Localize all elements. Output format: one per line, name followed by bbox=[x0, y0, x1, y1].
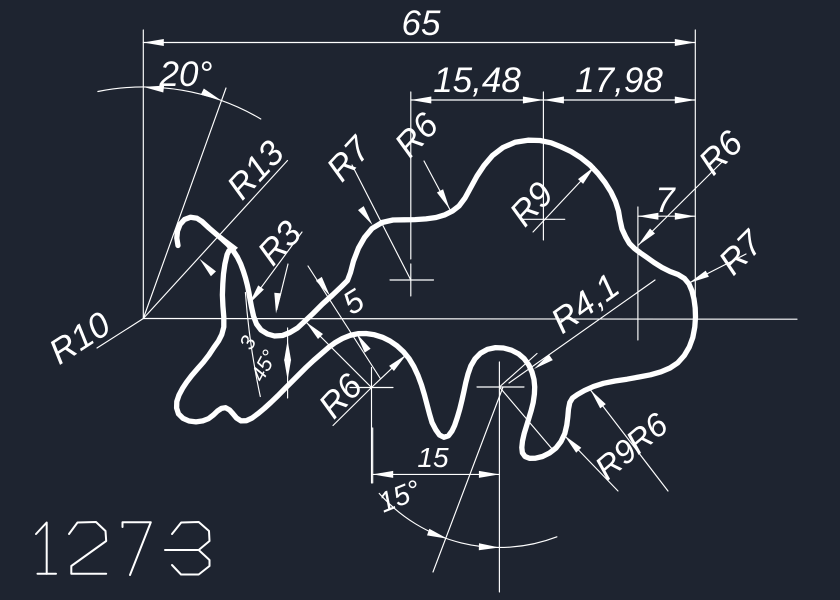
svg-text:17,98: 17,98 bbox=[575, 61, 663, 100]
svg-text:7: 7 bbox=[655, 181, 676, 220]
svg-text:65: 65 bbox=[402, 4, 441, 43]
svg-text:15,48: 15,48 bbox=[433, 61, 521, 100]
svg-text:20°: 20° bbox=[159, 55, 213, 94]
svg-text:15: 15 bbox=[417, 442, 449, 473]
